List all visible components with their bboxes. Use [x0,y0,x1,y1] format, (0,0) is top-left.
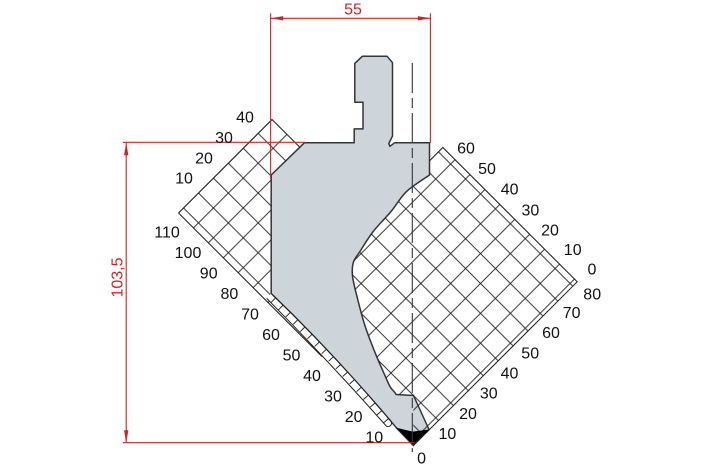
svg-text:40: 40 [501,182,519,199]
svg-text:40: 40 [236,110,254,127]
svg-text:20: 20 [195,151,213,168]
svg-text:40: 40 [501,366,519,383]
svg-text:20: 20 [345,409,363,426]
svg-text:0: 0 [417,451,426,468]
svg-text:100: 100 [175,245,202,262]
svg-text:10: 10 [175,171,193,188]
svg-text:70: 70 [563,305,581,322]
svg-text:50: 50 [478,161,496,178]
svg-text:50: 50 [283,348,301,365]
svg-text:60: 60 [542,325,560,342]
svg-text:50: 50 [521,345,539,362]
svg-text:20: 20 [459,406,477,423]
svg-text:90: 90 [200,266,218,283]
svg-text:10: 10 [365,430,383,447]
svg-text:20: 20 [541,222,559,239]
svg-text:70: 70 [241,307,259,324]
svg-text:10: 10 [564,242,582,259]
svg-text:30: 30 [324,389,342,406]
svg-text:30: 30 [522,202,540,219]
svg-text:55: 55 [344,1,362,18]
svg-text:40: 40 [303,368,321,385]
svg-text:60: 60 [262,327,280,344]
svg-text:30: 30 [215,130,233,147]
svg-text:103,5: 103,5 [110,257,127,297]
svg-text:110: 110 [154,225,180,242]
svg-text:0: 0 [588,262,597,279]
svg-text:60: 60 [457,141,475,158]
svg-text:30: 30 [480,386,498,403]
svg-text:80: 80 [583,287,601,304]
svg-text:80: 80 [221,286,239,303]
svg-text:10: 10 [439,426,457,443]
